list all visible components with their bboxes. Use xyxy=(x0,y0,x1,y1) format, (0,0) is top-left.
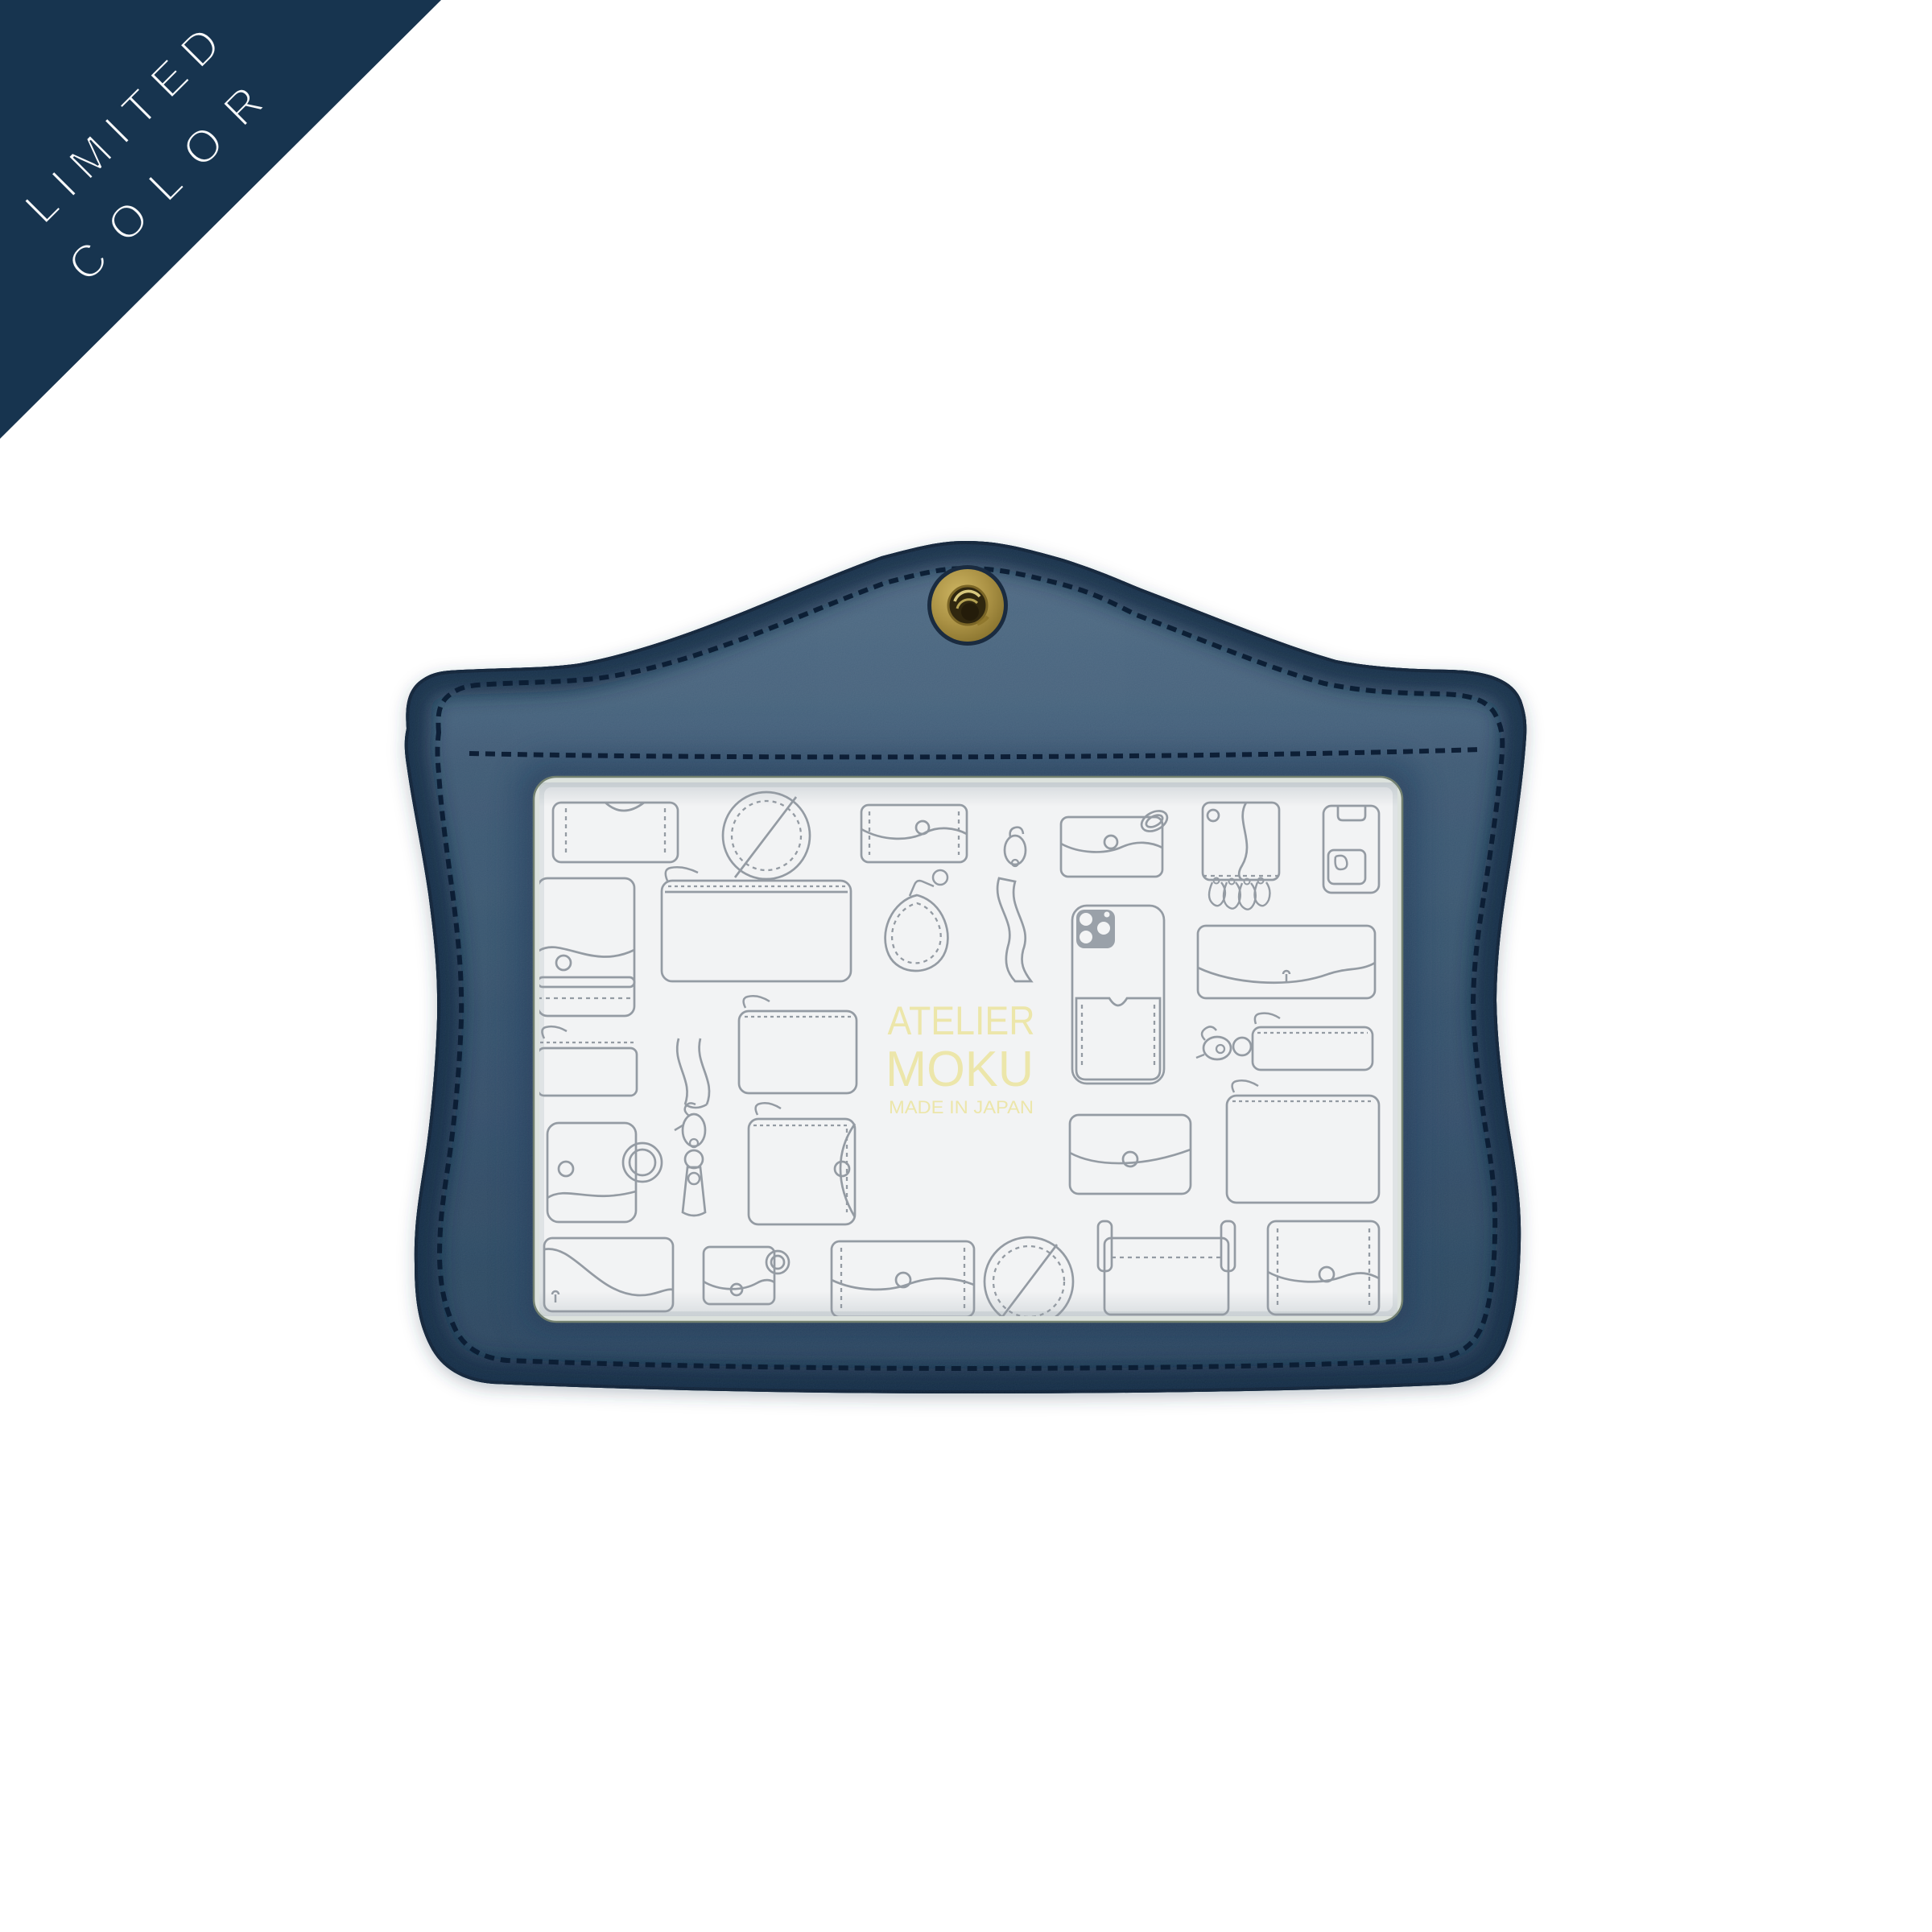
svg-text:ATELIER: ATELIER xyxy=(888,998,1035,1043)
svg-text:MADE IN JAPAN: MADE IN JAPAN xyxy=(889,1097,1034,1117)
svg-text:MOKU: MOKU xyxy=(885,1042,1034,1097)
